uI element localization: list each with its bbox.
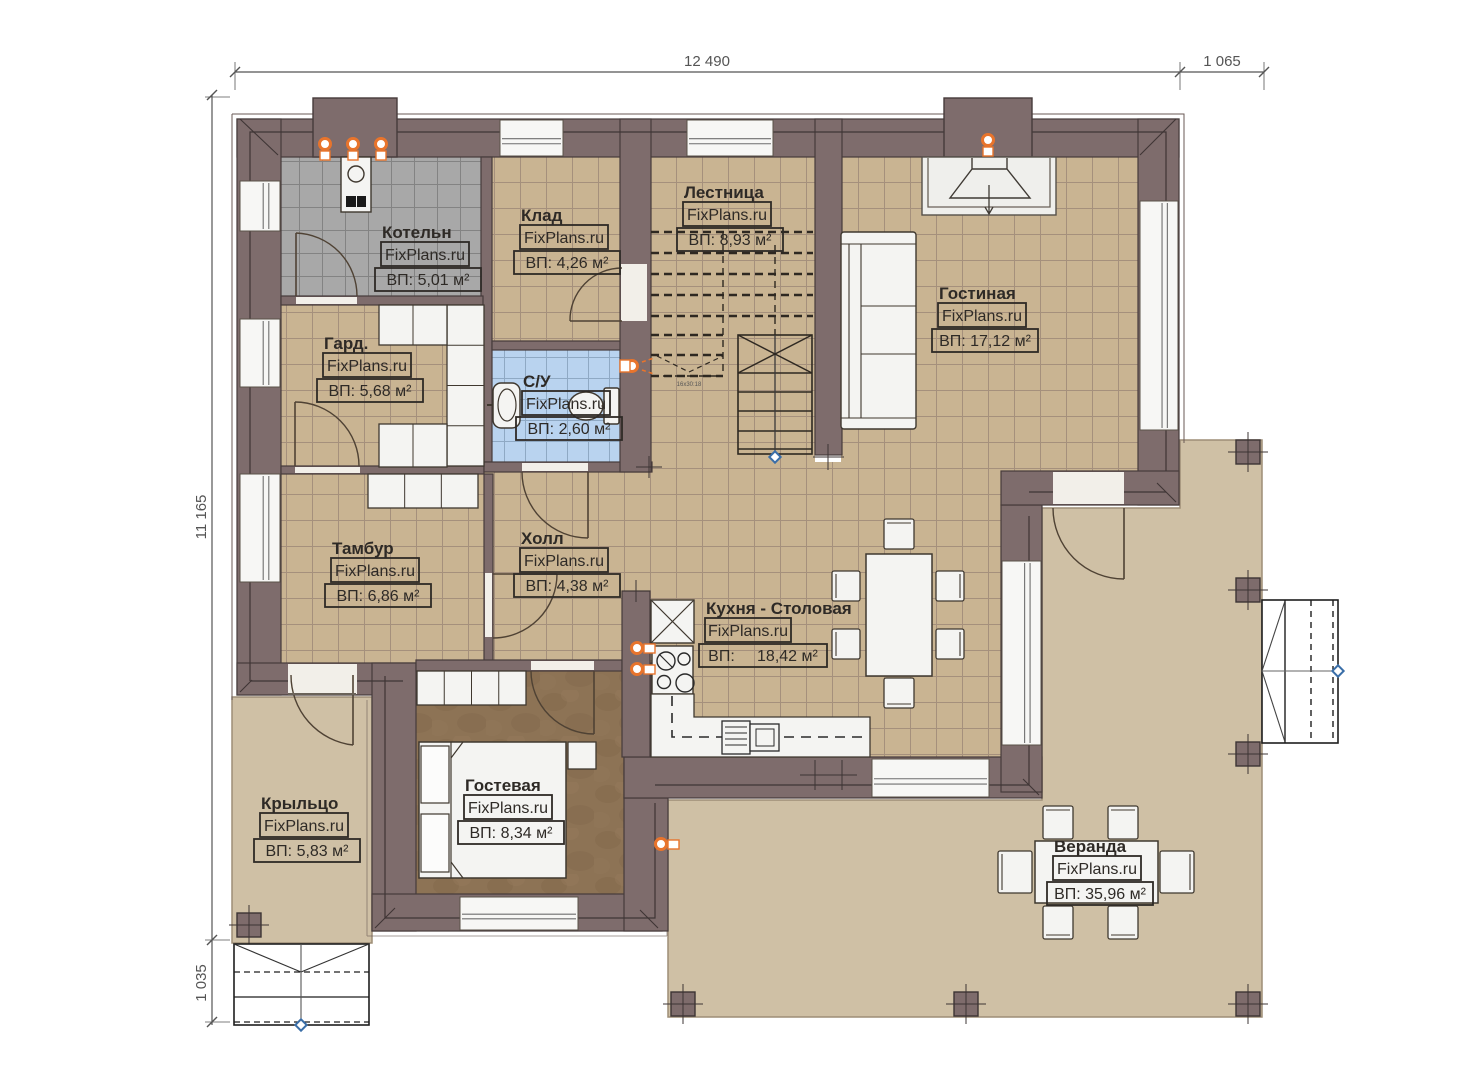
svg-text:FixPlans.ru: FixPlans.ru	[335, 563, 415, 580]
svg-text:С/У: С/У	[523, 372, 551, 391]
svg-text:FixPlans.ru: FixPlans.ru	[708, 623, 788, 640]
svg-text:Гард.: Гард.	[324, 334, 368, 353]
svg-text:Гостевая: Гостевая	[465, 776, 541, 795]
svg-text:FixPlans.ru: FixPlans.ru	[264, 818, 344, 835]
svg-text:Лестница: Лестница	[684, 183, 764, 202]
svg-text:ВП: 17,12 м²: ВП: 17,12 м²	[939, 333, 1032, 350]
svg-text:12 490: 12 490	[684, 53, 730, 70]
svg-text:Клад: Клад	[521, 206, 563, 225]
svg-text:FixPlans.ru: FixPlans.ru	[468, 800, 548, 817]
svg-text:FixPlans.ru: FixPlans.ru	[687, 207, 767, 224]
svg-text:11 165: 11 165	[193, 495, 210, 540]
svg-text:Крыльцо: Крыльцо	[261, 794, 338, 813]
svg-text:16x30:18: 16x30:18	[677, 382, 702, 388]
svg-text:Гостиная: Гостиная	[939, 284, 1016, 303]
svg-text:FixPlans.ru: FixPlans.ru	[524, 230, 604, 247]
svg-text:1 035: 1 035	[193, 964, 210, 1002]
svg-text:FixPlans.ru: FixPlans.ru	[385, 247, 465, 264]
svg-text:ВП: 2,60 м²: ВП: 2,60 м²	[528, 421, 612, 438]
svg-text:Кухня - Столовая: Кухня - Столовая	[706, 599, 852, 618]
svg-text:FixPlans.ru: FixPlans.ru	[526, 396, 606, 413]
svg-text:Веранда: Веранда	[1054, 837, 1127, 856]
svg-text:ВП: 4,38 м²: ВП: 4,38 м²	[526, 578, 610, 595]
svg-text:ВП: 4,26 м²: ВП: 4,26 м²	[526, 255, 610, 272]
svg-text:Котельн: Котельн	[382, 223, 452, 242]
svg-text:ВП: 5,01 м²: ВП: 5,01 м²	[387, 272, 471, 289]
svg-text:Тамбур: Тамбур	[332, 539, 394, 558]
svg-text:ВП: 8,93 м²: ВП: 8,93 м²	[689, 232, 773, 249]
svg-text:ВП: 5,83 м²: ВП: 5,83 м²	[266, 843, 350, 860]
svg-text:1 065: 1 065	[1203, 53, 1241, 70]
svg-text:FixPlans.ru: FixPlans.ru	[1057, 861, 1137, 878]
svg-text:Холл: Холл	[521, 529, 564, 548]
svg-text:ВП: 6,86 м²: ВП: 6,86 м²	[337, 588, 421, 605]
svg-text:ВП: 18,42 м²: ВП: 18,42 м²	[708, 648, 818, 665]
svg-text:ВП: 8,34 м²: ВП: 8,34 м²	[470, 825, 554, 842]
svg-text:ВП: 5,68 м²: ВП: 5,68 м²	[329, 383, 413, 400]
svg-text:FixPlans.ru: FixPlans.ru	[524, 553, 604, 570]
svg-text:ВП: 35,96 м²: ВП: 35,96 м²	[1054, 886, 1147, 903]
svg-text:FixPlans.ru: FixPlans.ru	[327, 358, 407, 375]
svg-text:FixPlans.ru: FixPlans.ru	[942, 308, 1022, 325]
